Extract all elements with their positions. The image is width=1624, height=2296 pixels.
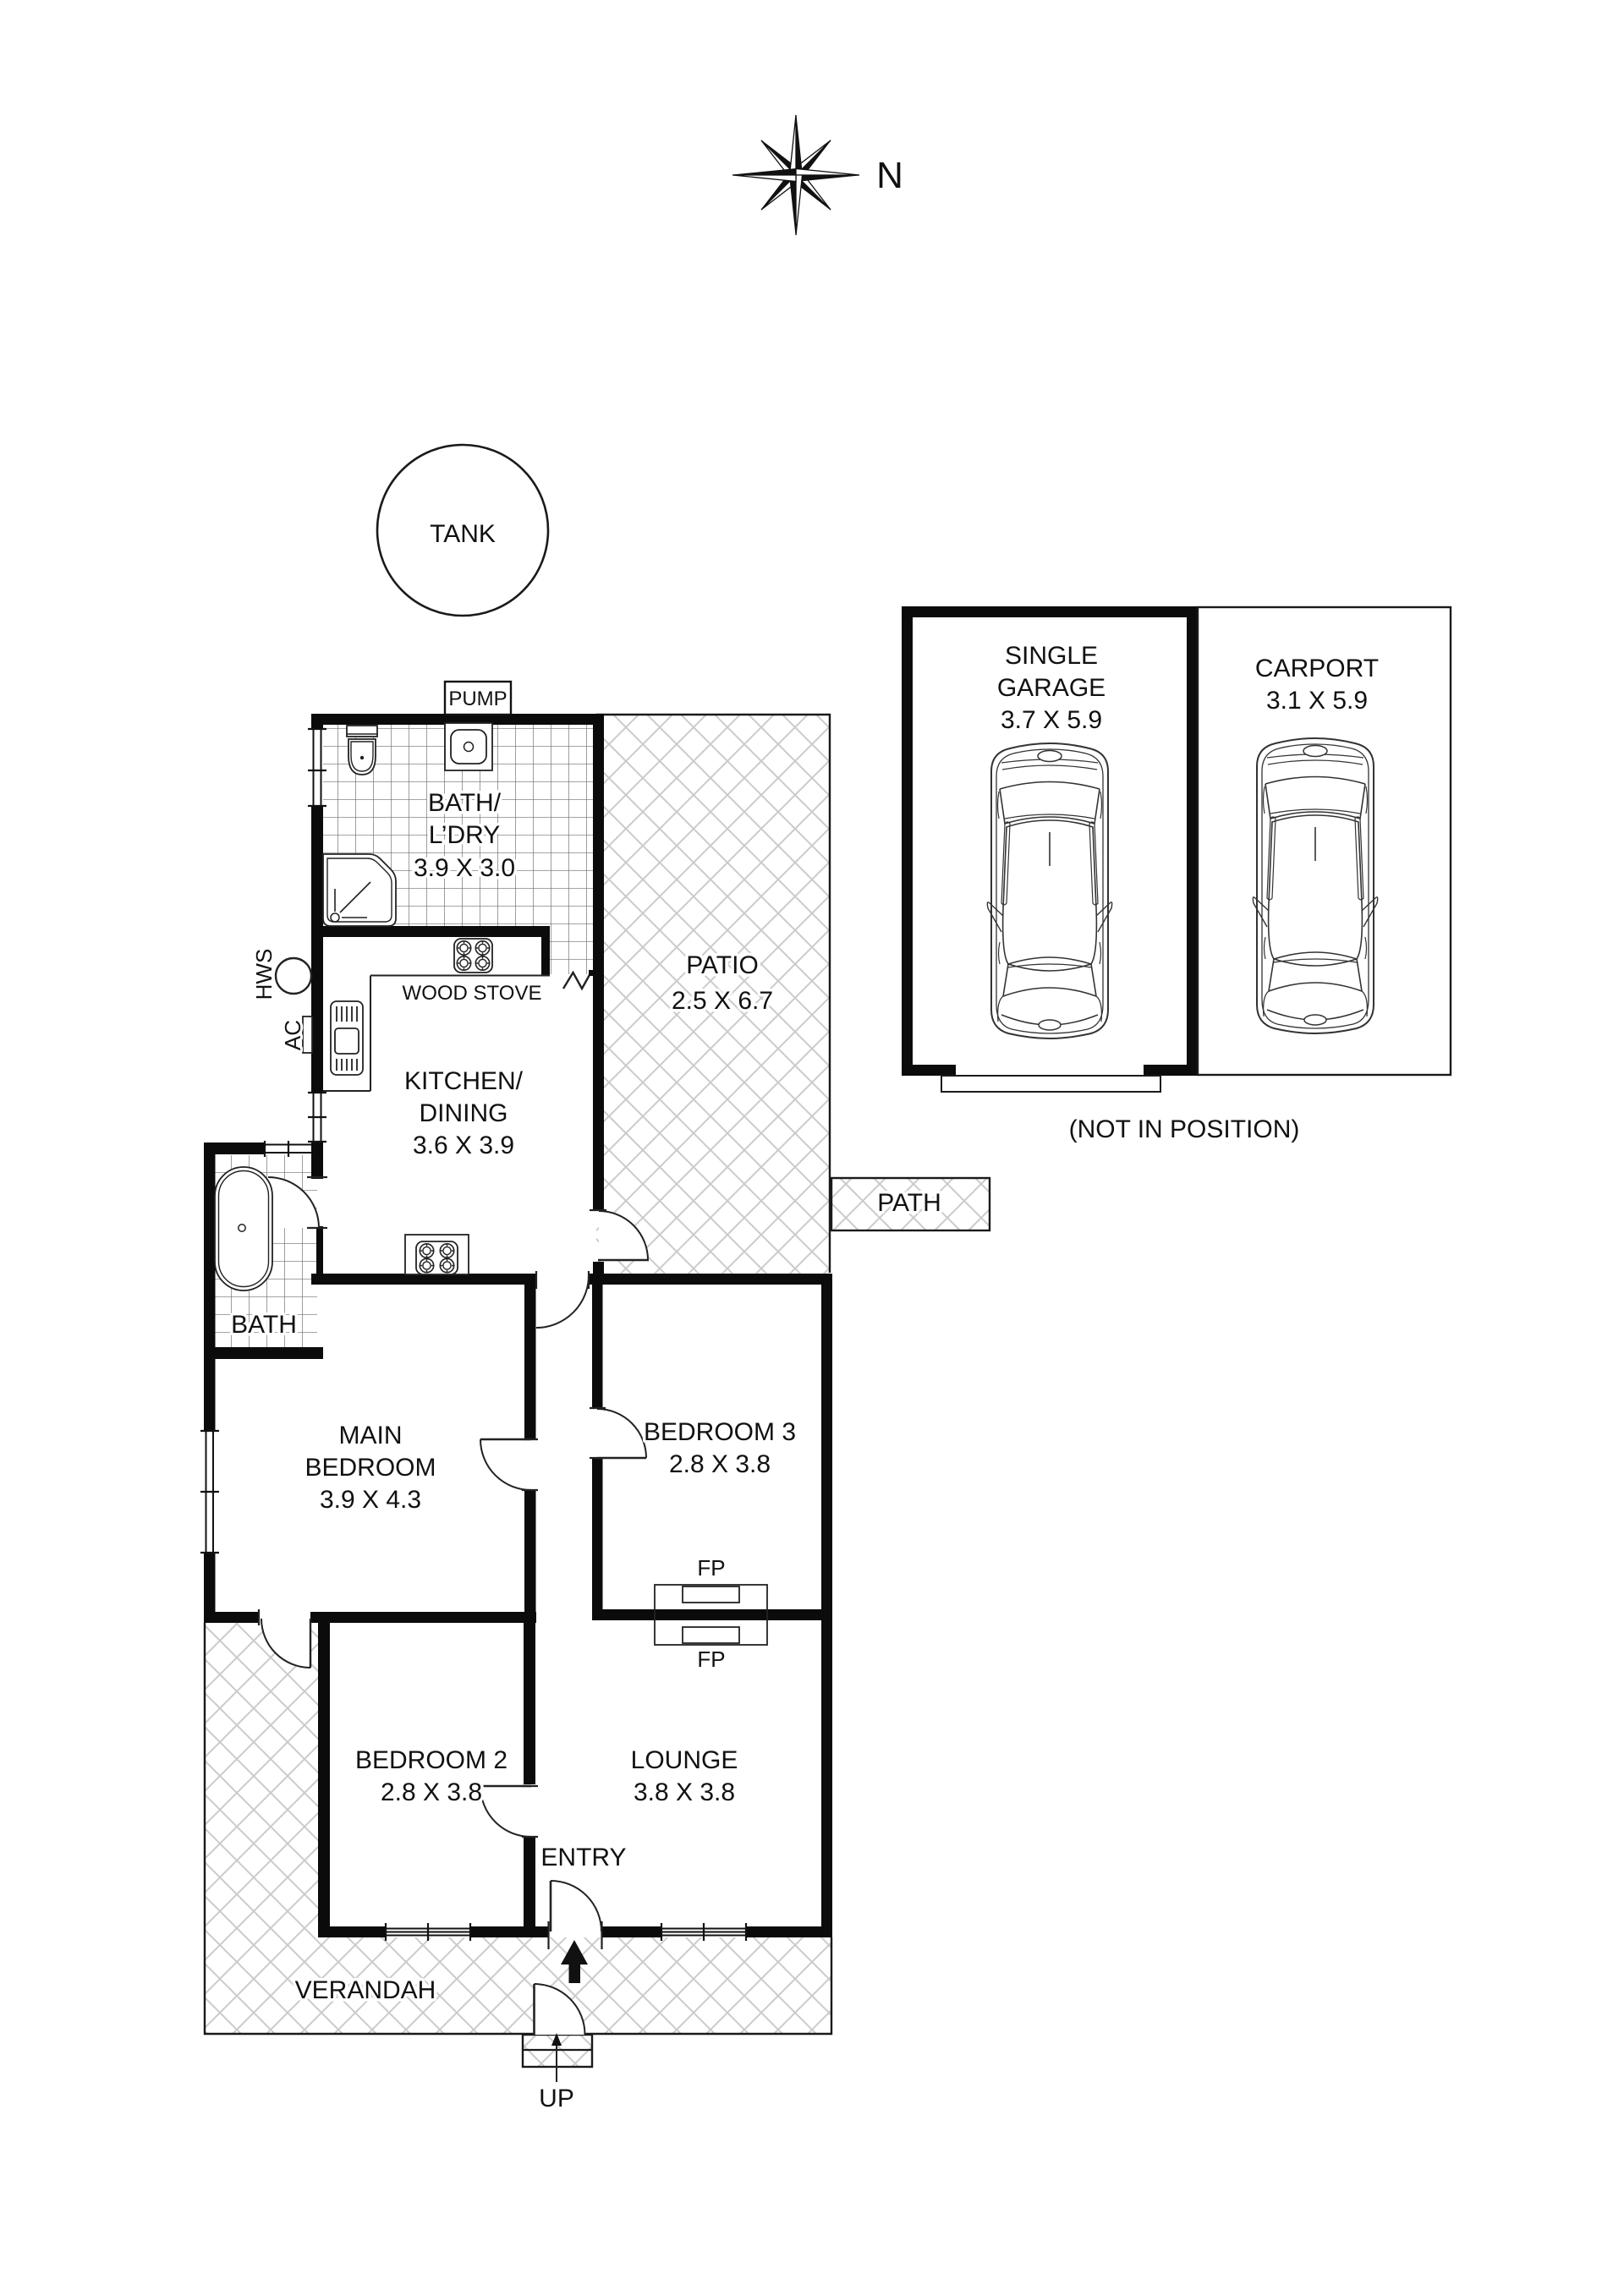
- svg-text:SINGLE: SINGLE: [1005, 642, 1098, 670]
- svg-text:BEDROOM 2: BEDROOM 2: [355, 1746, 507, 1774]
- svg-text:PATH: PATH: [877, 1189, 941, 1217]
- svg-text:VERANDAH: VERANDAH: [295, 1976, 436, 2004]
- svg-text:FP: FP: [697, 1555, 725, 1581]
- svg-text:3.8 X 3.8: 3.8 X 3.8: [634, 1778, 735, 1806]
- svg-text:3.6 X 3.9: 3.6 X 3.9: [413, 1132, 514, 1159]
- svg-text:3.9 X 4.3: 3.9 X 4.3: [320, 1486, 421, 1514]
- svg-text:UP: UP: [539, 2085, 574, 2112]
- svg-text:MAIN: MAIN: [339, 1422, 403, 1449]
- svg-text:BATH: BATH: [231, 1311, 297, 1339]
- svg-text:(NOT IN POSITION): (NOT IN POSITION): [1069, 1115, 1300, 1143]
- svg-text:PUMP: PUMP: [448, 688, 507, 710]
- svg-text:2.8 X 3.8: 2.8 X 3.8: [381, 1778, 482, 1806]
- svg-text:ENTRY: ENTRY: [540, 1844, 626, 1871]
- svg-text:KITCHEN/: KITCHEN/: [404, 1067, 524, 1095]
- svg-text:FP: FP: [697, 1647, 725, 1672]
- svg-text:BATH/: BATH/: [428, 789, 502, 817]
- svg-text:DINING: DINING: [420, 1099, 508, 1127]
- svg-text:2.5 X 6.7: 2.5 X 6.7: [672, 987, 773, 1015]
- svg-text:TANK: TANK: [430, 520, 496, 548]
- svg-text:3.9 X 3.0: 3.9 X 3.0: [414, 854, 515, 882]
- svg-text:LOUNGE: LOUNGE: [631, 1746, 738, 1774]
- svg-text:L’DRY: L’DRY: [429, 821, 501, 849]
- svg-text:3.1 X 5.9: 3.1 X 5.9: [1266, 687, 1368, 715]
- svg-text:AC: AC: [280, 1020, 305, 1050]
- svg-text:CARPORT: CARPORT: [1255, 655, 1379, 682]
- svg-text:2.8 X 3.8: 2.8 X 3.8: [669, 1450, 771, 1478]
- svg-text:HWS: HWS: [251, 949, 277, 1000]
- svg-text:3.7 X 5.9: 3.7 X 5.9: [1001, 706, 1102, 734]
- svg-text:N: N: [876, 155, 903, 196]
- svg-text:BEDROOM 3: BEDROOM 3: [644, 1418, 796, 1446]
- svg-text:PATIO: PATIO: [686, 951, 759, 979]
- svg-text:WOOD STOVE: WOOD STOVE: [403, 982, 542, 1005]
- svg-text:BEDROOM: BEDROOM: [304, 1454, 436, 1482]
- svg-text:GARAGE: GARAGE: [997, 674, 1106, 702]
